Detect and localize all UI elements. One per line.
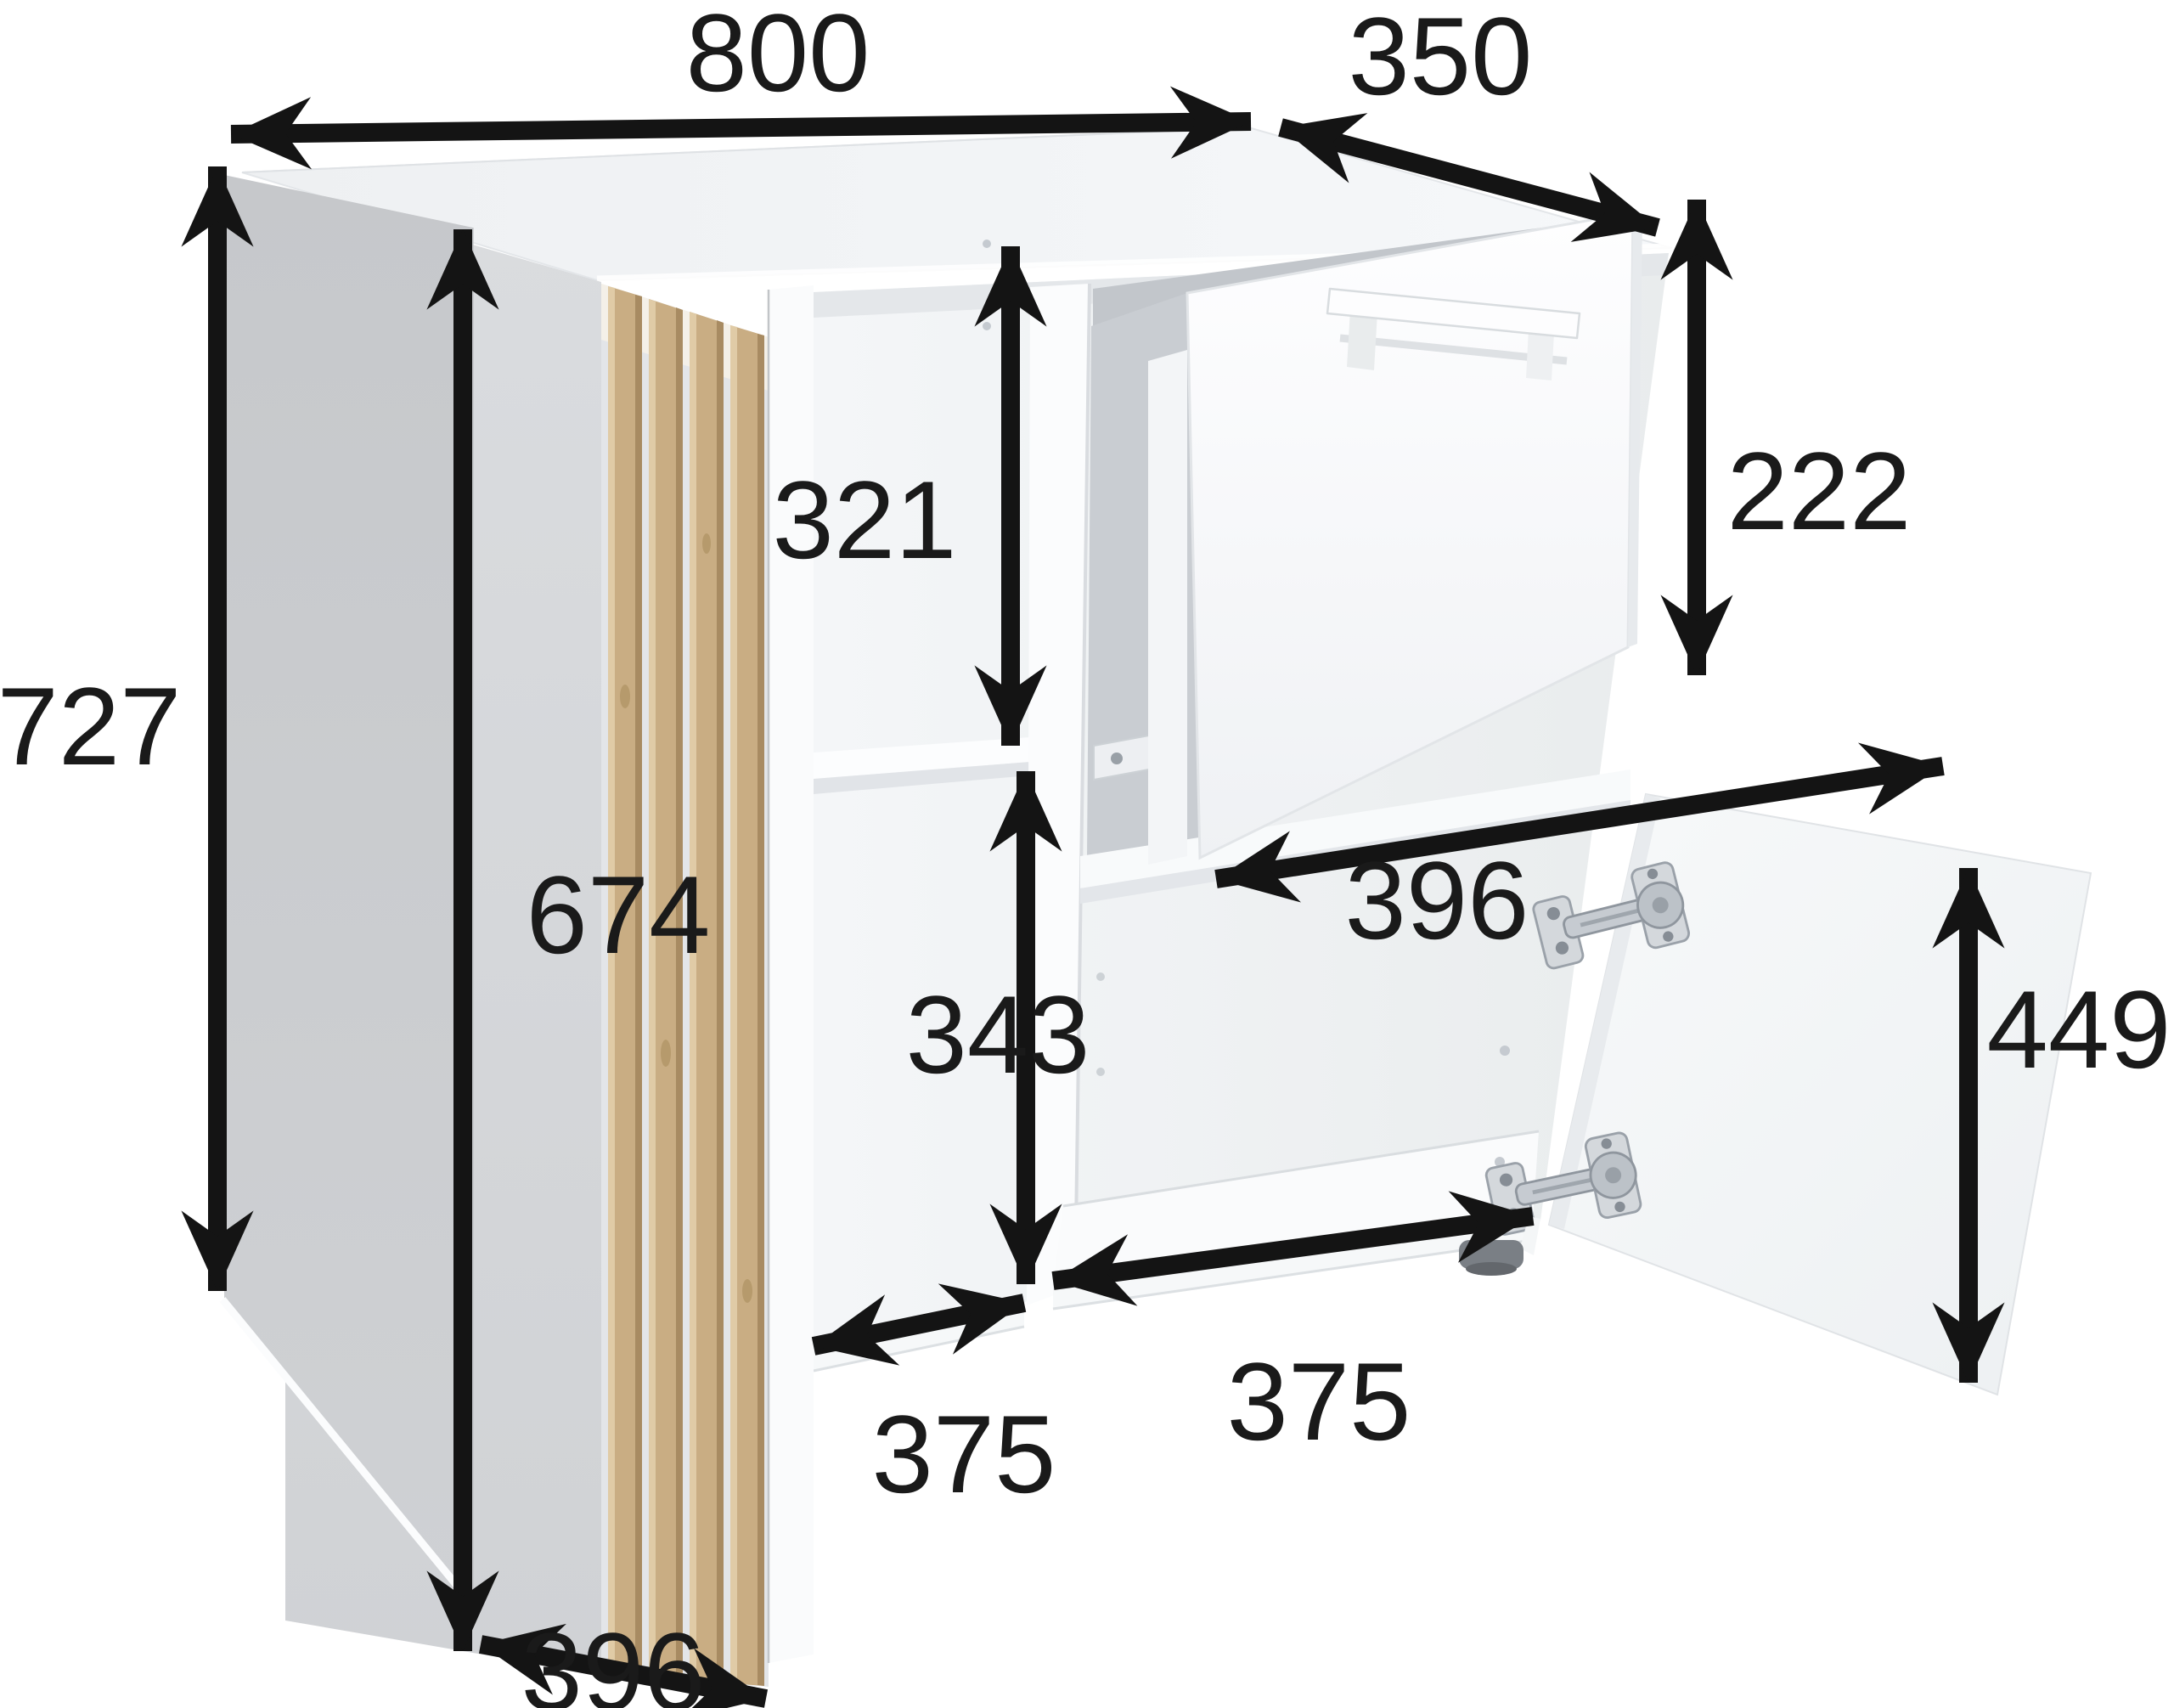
shelf-pin-hole <box>1096 1068 1105 1076</box>
wood-slat-4 <box>730 325 764 1686</box>
drawer-side-panel <box>1148 350 1187 865</box>
dim-left-door-depth-label: 396 <box>521 1609 706 1708</box>
dim-drawer-width-label: 396 <box>1345 838 1529 962</box>
wood-knot <box>620 685 630 708</box>
wood-slat-highlight <box>690 312 696 1681</box>
shelf-pin-hole <box>1096 972 1105 981</box>
wood-slat-1 <box>608 286 642 1677</box>
cabinet-dimension-diagram: 800 350 727 674 321 343 222 396 <box>0 0 2174 1708</box>
wood-slat-3 <box>690 312 724 1683</box>
right-door <box>1549 794 2091 1395</box>
wood-knot <box>742 1279 752 1303</box>
drawer-handle-mount-left <box>1347 310 1377 370</box>
dim-left-compartment-width-label: 375 <box>872 1392 1056 1516</box>
wood-slat-highlight <box>608 286 615 1675</box>
dim-left-door-height-label: 674 <box>527 853 711 977</box>
wood-slat-highlight <box>730 325 737 1684</box>
shelf-pin-hole <box>983 322 991 330</box>
dim-total-depth-label: 350 <box>1349 0 1533 118</box>
wood-knot <box>702 533 711 554</box>
dim-upper-compartment-height-label: 321 <box>773 458 957 582</box>
dim-total-height: 727 <box>0 166 217 1291</box>
cabinet <box>222 127 2091 1687</box>
left-side-panel <box>224 175 473 1604</box>
dim-drawer-front-height-label: 222 <box>1727 429 1912 553</box>
rail-screw <box>1111 753 1123 764</box>
wood-slat-shade <box>676 307 683 1680</box>
wood-knot <box>661 1040 671 1067</box>
wood-slat-2 <box>649 299 683 1680</box>
dim-right-compartment-width-label: 375 <box>1227 1339 1411 1463</box>
drawer-handle-mount-right <box>1526 330 1554 380</box>
dim-right-door-height-label: 449 <box>1987 967 2171 1091</box>
dim-total-height-label: 727 <box>0 664 181 788</box>
dim-lower-compartment-height-label: 343 <box>906 972 1090 1096</box>
wood-slat-highlight <box>649 299 656 1678</box>
shelf-pin-hole <box>1500 1046 1510 1056</box>
foot-base <box>1466 1262 1517 1276</box>
shelf-pin-hole <box>983 240 991 248</box>
wood-slat-shade <box>635 295 642 1677</box>
left-door-assembly <box>222 175 814 1687</box>
dim-total-width: 800 <box>231 0 1251 134</box>
wood-slat-shade <box>758 334 764 1686</box>
dim-total-width-label: 800 <box>686 0 870 115</box>
dim-total-width-arrow <box>231 121 1251 134</box>
wood-slat-shade <box>717 320 724 1683</box>
dim-drawer-front-height: 222 <box>1697 200 1911 675</box>
